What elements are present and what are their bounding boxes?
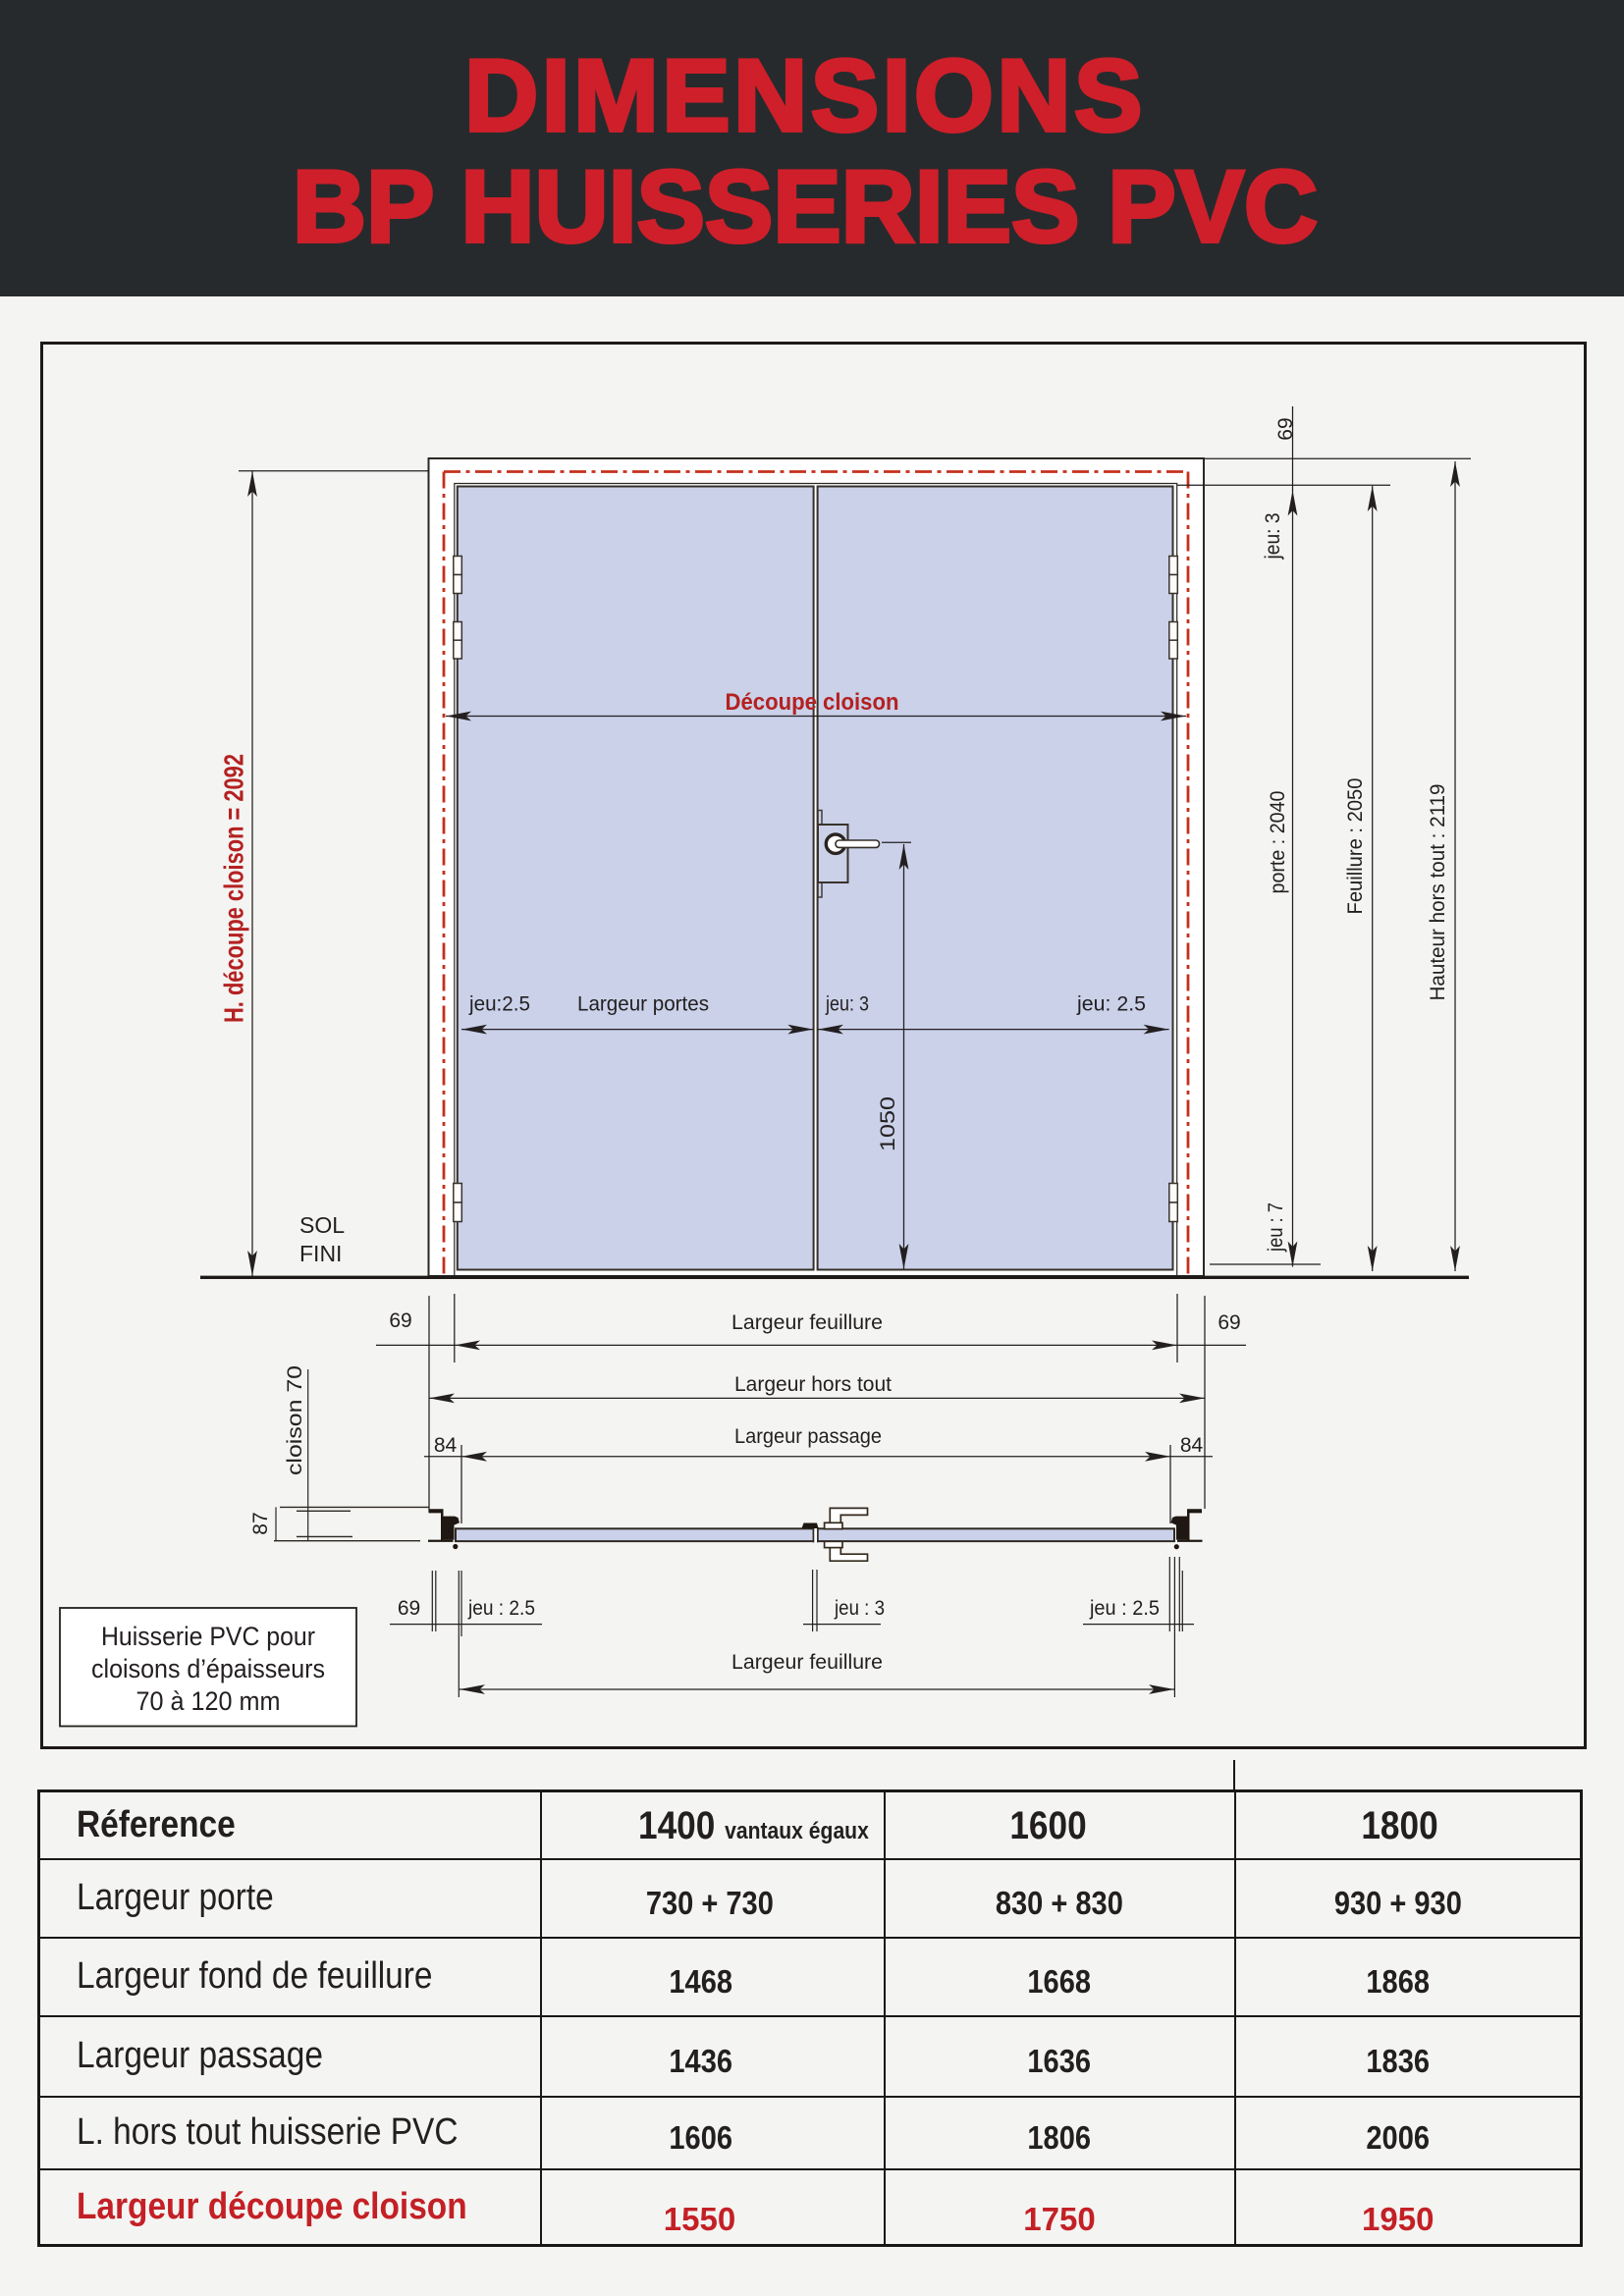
svg-text:87: 87 [249, 1512, 272, 1534]
svg-text:Hauteur hors tout : 2119: Hauteur hors tout : 2119 [1427, 784, 1449, 1001]
svg-text:Largeur portes: Largeur portes [577, 993, 709, 1016]
svg-text:porte : 2040: porte : 2040 [1267, 791, 1289, 894]
svg-text:84: 84 [434, 1434, 458, 1457]
svg-text:Feuillure : 2050: Feuillure : 2050 [1344, 778, 1367, 915]
svg-text:Largeur hors tout: Largeur hors tout [734, 1373, 892, 1396]
svg-text:70 à 120 mm: 70 à 120 mm [136, 1686, 281, 1716]
svg-text:cloison 70: cloison 70 [284, 1365, 306, 1475]
svg-text:cloisons d’épaisseurs: cloisons d’épaisseurs [91, 1654, 325, 1683]
svg-text:SOL: SOL [299, 1212, 345, 1238]
svg-text:jeu: 3: jeu: 3 [825, 993, 869, 1016]
svg-text:H. découpe cloison = 2092: H. découpe cloison = 2092 [219, 754, 249, 1023]
svg-text:FINI: FINI [299, 1241, 342, 1266]
svg-text:Découpe cloison: Découpe cloison [726, 689, 899, 716]
svg-text:jeu: 2.5: jeu: 2.5 [1076, 993, 1146, 1016]
svg-text:jeu : 2.5: jeu : 2.5 [1089, 1597, 1160, 1620]
svg-text:1050: 1050 [877, 1096, 899, 1151]
svg-text:69: 69 [389, 1309, 411, 1332]
svg-text:Largeur feuillure: Largeur feuillure [731, 1311, 883, 1334]
svg-text:jeu:2.5: jeu:2.5 [468, 993, 530, 1016]
svg-text:jeu : 7: jeu : 7 [1265, 1202, 1287, 1253]
svg-text:Largeur feuillure: Largeur feuillure [731, 1651, 883, 1674]
svg-text:Huisserie PVC pour: Huisserie PVC pour [101, 1622, 315, 1651]
svg-text:jeu : 2.5: jeu : 2.5 [467, 1597, 535, 1620]
svg-text:jeu : 3: jeu : 3 [834, 1597, 885, 1620]
svg-text:Largeur passage: Largeur passage [734, 1425, 882, 1448]
svg-text:69: 69 [398, 1597, 420, 1620]
svg-text:69: 69 [1218, 1311, 1240, 1334]
svg-text:84: 84 [1180, 1434, 1204, 1457]
svg-text:jeu: 3: jeu: 3 [1262, 513, 1284, 561]
svg-text:69: 69 [1274, 417, 1297, 440]
